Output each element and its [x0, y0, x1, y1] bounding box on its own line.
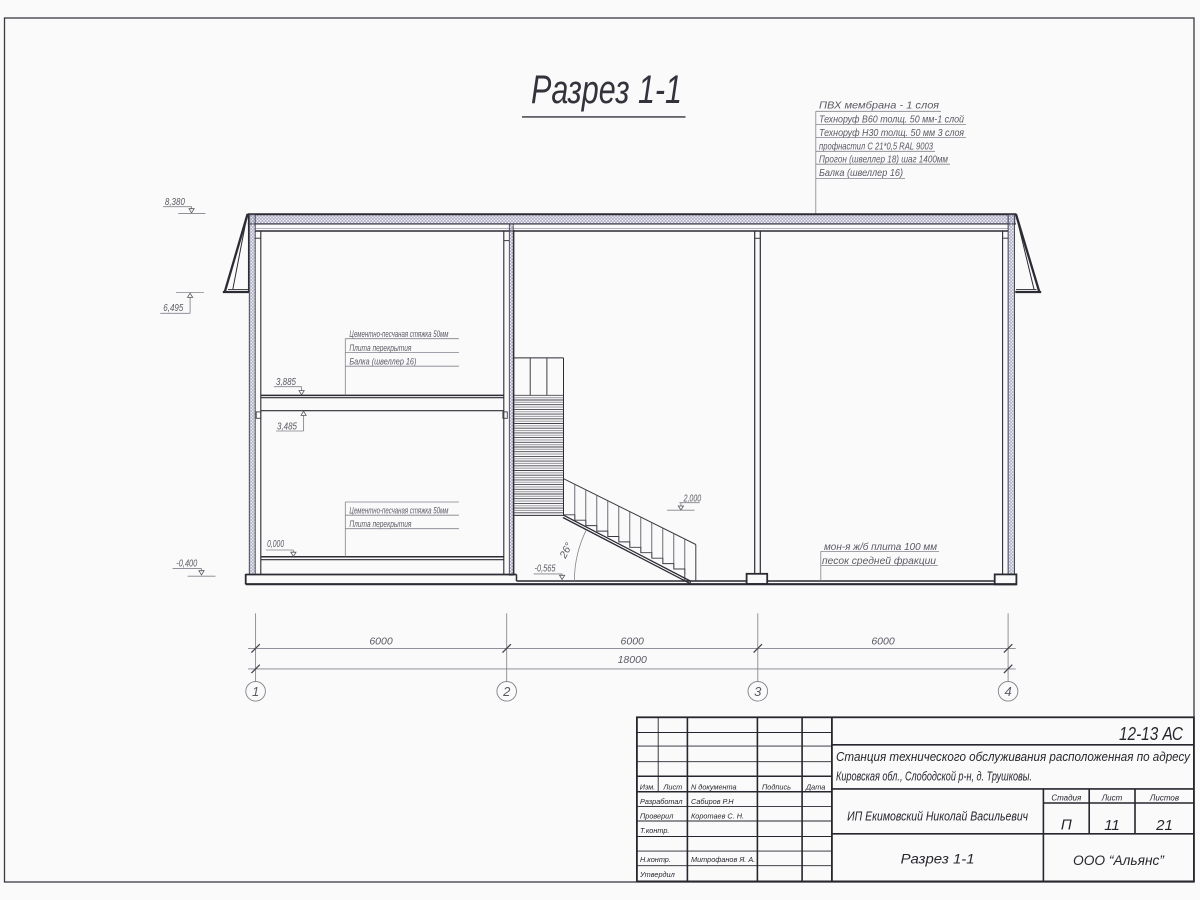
svg-text:Балка (швеллер 16): Балка (швеллер 16): [819, 167, 903, 179]
svg-text:12-13 АС: 12-13 АС: [1119, 724, 1184, 744]
svg-text:Проверил: Проверил: [640, 811, 673, 820]
svg-text:0,000: 0,000: [267, 539, 284, 550]
svg-text:3: 3: [754, 684, 762, 699]
svg-text:Лист: Лист: [662, 782, 682, 791]
svg-text:8,380: 8,380: [165, 197, 185, 208]
svg-text:Разрез 1-1: Разрез 1-1: [531, 68, 682, 112]
svg-text:1: 1: [252, 684, 259, 699]
svg-text:4: 4: [1004, 684, 1011, 699]
svg-text:Коротаев С. Н.: Коротаев С. Н.: [691, 811, 744, 820]
svg-text:ООО “Альянс”: ООО “Альянс”: [1073, 852, 1165, 868]
svg-text:Т.контр.: Т.контр.: [640, 826, 669, 835]
svg-text:Лист: Лист: [1101, 794, 1123, 803]
svg-text:Цементно-песчаная стяжка 50мм: Цементно-песчаная стяжка 50мм: [349, 505, 448, 515]
svg-text:профнастил С 21*0,5 RAL 9003: профнастил С 21*0,5 RAL 9003: [819, 140, 933, 152]
svg-text:Плита перекрытия: Плита перекрытия: [349, 519, 411, 529]
svg-text:6,495: 6,495: [163, 303, 183, 314]
svg-text:ПВХ мембрана - 1 слоя: ПВХ мембрана - 1 слоя: [819, 100, 939, 112]
svg-text:6000: 6000: [369, 636, 393, 648]
svg-text:Прогон (швеллер 18) шаг 1400мм: Прогон (швеллер 18) шаг 1400мм: [819, 153, 948, 165]
svg-text:Кировская обл., Слободской р-н: Кировская обл., Слободской р-н, д. Трушк…: [836, 768, 1032, 783]
svg-text:11: 11: [1104, 817, 1120, 834]
svg-text:Техноруф Н30 толщ. 50 мм 3 сло: Техноруф Н30 толщ. 50 мм 3 слоя: [819, 127, 964, 139]
svg-text:Разрез 1-1: Разрез 1-1: [901, 852, 975, 867]
svg-text:Митрофанов Я. А.: Митрофанов Я. А.: [691, 855, 755, 864]
svg-text:18000: 18000: [618, 654, 647, 666]
svg-text:Н.контр.: Н.контр.: [640, 855, 671, 864]
svg-text:Листов: Листов: [1149, 794, 1179, 803]
svg-text:-0,400: -0,400: [176, 559, 197, 570]
svg-text:П: П: [1061, 817, 1072, 834]
svg-text:Изм.: Изм.: [640, 782, 656, 791]
svg-text:6000: 6000: [871, 636, 895, 648]
svg-text:Сабиров Р.Н: Сабиров Р.Н: [691, 797, 734, 806]
svg-text:Стадия: Стадия: [1051, 794, 1082, 803]
svg-text:6000: 6000: [621, 636, 645, 648]
svg-text:Подпись: Подпись: [762, 782, 791, 791]
svg-text:Разработал: Разработал: [640, 797, 683, 806]
svg-text:Цементно-песчаная стяжка 50мм: Цементно-песчаная стяжка 50мм: [349, 329, 448, 339]
svg-text:Плита перекрытия: Плита перекрытия: [349, 343, 411, 353]
svg-text:21: 21: [1155, 817, 1173, 834]
svg-text:Станция технического обслужива: Станция технического обслуживания распол…: [836, 749, 1191, 764]
svg-text:2: 2: [502, 684, 511, 699]
svg-text:-0,565: -0,565: [535, 564, 556, 575]
svg-text:Дата: Дата: [805, 782, 825, 791]
svg-text:N документа: N документа: [691, 782, 737, 791]
svg-text:Утвердил: Утвердил: [639, 870, 675, 879]
svg-text:Техноруф В60 толщ. 50 мм-1 сло: Техноруф В60 толщ. 50 мм-1 слой: [819, 114, 964, 126]
svg-text:Балка (швеллер 16): Балка (швеллер 16): [349, 356, 416, 366]
svg-text:ИП Екимовский Николай Васильев: ИП Екимовский Николай Васильевич: [847, 810, 1028, 824]
